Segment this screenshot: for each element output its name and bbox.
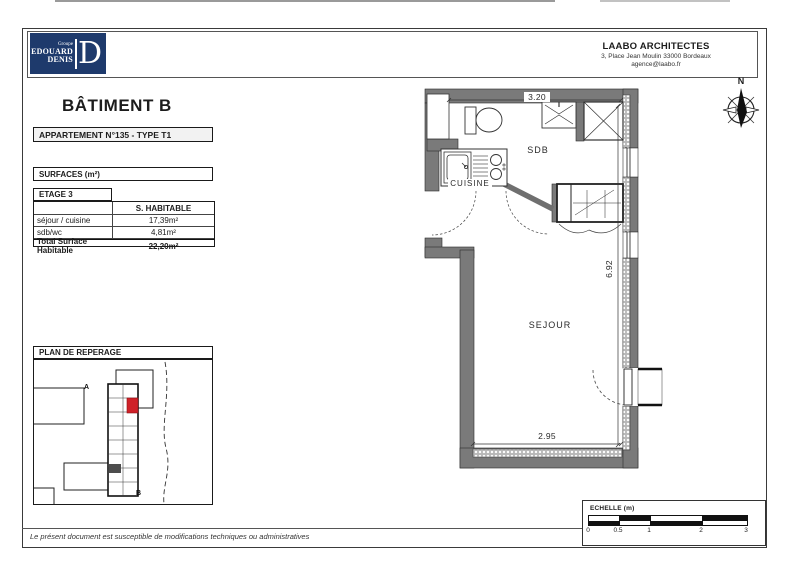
diagonal-wall bbox=[504, 184, 553, 209]
table-header-row: S. HABITABLE bbox=[34, 202, 214, 215]
scanned-floorplan-sheet: { "header": { "logo": {"group": "Groupe"… bbox=[0, 0, 799, 565]
washbasin-icon bbox=[542, 102, 576, 128]
row-value: 17,39m² bbox=[113, 216, 214, 225]
scale-tick: 1 bbox=[639, 527, 659, 534]
building-b-slab bbox=[108, 384, 138, 496]
scale-bar bbox=[588, 515, 748, 526]
architect-name: LAABO ARCHITECTES bbox=[560, 41, 752, 53]
apartment-title-box: APPARTEMENT N°135 - TYPE T1 bbox=[33, 127, 213, 142]
scan-artifact bbox=[600, 0, 730, 2]
footer-divider bbox=[22, 528, 582, 529]
folding-door-arc bbox=[559, 224, 621, 233]
room-label-cuisine: CUISINE bbox=[448, 179, 492, 188]
site-map-drawing bbox=[34, 360, 213, 505]
closet-icon bbox=[557, 184, 623, 233]
shower-icon bbox=[584, 102, 623, 140]
room-label-sdb: SDB bbox=[524, 145, 552, 155]
scale-tick: 3 bbox=[736, 527, 756, 534]
architect-address: 3, Place Jean Moulin 33000 Bordeaux bbox=[560, 53, 752, 61]
burner-icon bbox=[491, 169, 502, 180]
building-a-label: A bbox=[84, 384, 89, 391]
door-landing bbox=[638, 369, 662, 405]
site-map bbox=[33, 359, 213, 505]
table-total-row: Total Surface Habitable 22,20m² bbox=[34, 239, 214, 252]
north-label: N bbox=[733, 76, 749, 86]
scale-label: ECHELLE (m) bbox=[590, 505, 634, 512]
logo-monogram: D bbox=[75, 39, 102, 69]
dim-bottom: 2.95 bbox=[533, 431, 561, 441]
row-value: 4,81m² bbox=[113, 228, 214, 237]
page-title: BÂTIMENT B bbox=[62, 96, 262, 116]
technical-niche bbox=[427, 94, 449, 139]
building-b-label: B bbox=[136, 490, 141, 497]
dim-top: 3.20 bbox=[524, 92, 550, 102]
architect-email: agence@laabo.fr bbox=[560, 61, 752, 69]
surfaces-table: S. HABITABLE séjour / cuisine 17,39m² sd… bbox=[33, 201, 215, 247]
edouard-denis-logo: Groupe EDOUARD DENIS D bbox=[30, 33, 106, 74]
room-label-sejour: SEJOUR bbox=[524, 320, 576, 330]
site-boundary-dashed bbox=[164, 362, 168, 504]
logo-name-line2: DENIS bbox=[31, 56, 73, 64]
architect-block: LAABO ARCHITECTES 3, Place Jean Moulin 3… bbox=[560, 41, 752, 69]
logo-names: Groupe EDOUARD DENIS bbox=[31, 42, 73, 64]
highlighted-apartment-unit bbox=[127, 398, 138, 413]
entrance-door bbox=[593, 368, 662, 406]
total-label: Total Surface Habitable bbox=[34, 240, 113, 252]
floor-label-box: ETAGE 3 bbox=[33, 188, 112, 201]
footer-note: Le présent document est susceptible de m… bbox=[30, 532, 550, 541]
scale-tick: 2 bbox=[691, 527, 711, 534]
compass-icon bbox=[716, 86, 766, 132]
dim-right: 6.92 bbox=[604, 254, 614, 284]
scale-tick: 0.5 bbox=[608, 527, 628, 534]
table-col-header: S. HABITABLE bbox=[113, 204, 214, 213]
dark-unit bbox=[109, 464, 121, 473]
total-value: 22,20m² bbox=[113, 242, 214, 251]
toilet-icon bbox=[465, 107, 502, 134]
surfaces-title-box: SURFACES (m²) bbox=[33, 167, 213, 181]
floor-plan-drawing bbox=[410, 78, 680, 480]
table-header-spacer bbox=[34, 202, 113, 214]
table-row: séjour / cuisine 17,39m² bbox=[34, 215, 214, 227]
door-swing-arc bbox=[593, 370, 628, 405]
burner-icon bbox=[491, 155, 502, 166]
reperage-title-box: PLAN DE REPERAGE bbox=[33, 346, 213, 359]
scan-artifact bbox=[55, 0, 555, 2]
row-label: séjour / cuisine bbox=[34, 215, 113, 226]
